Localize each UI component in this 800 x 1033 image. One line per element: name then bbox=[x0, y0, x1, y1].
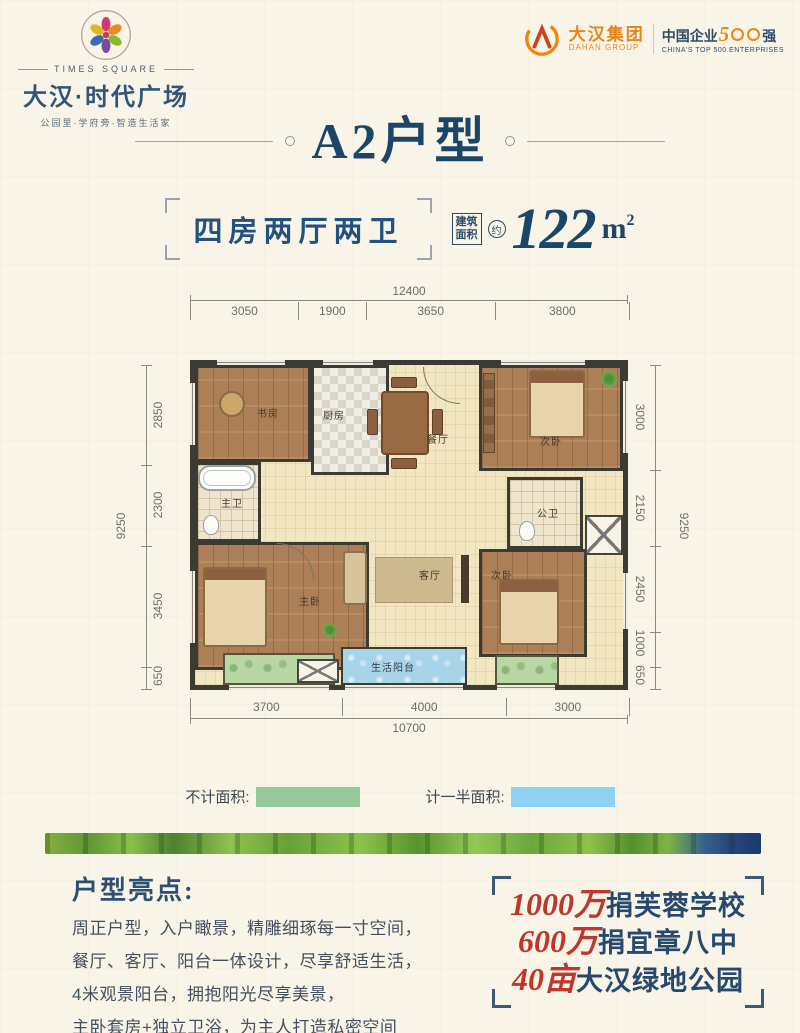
dim-left-line bbox=[146, 365, 147, 690]
dim-value: 3000 bbox=[507, 698, 629, 716]
window bbox=[323, 360, 373, 365]
dim-tick bbox=[141, 465, 152, 466]
bracket-corner bbox=[417, 198, 432, 213]
bed-bedroom-top bbox=[529, 370, 585, 438]
dining-table bbox=[381, 391, 429, 455]
area-group: 建筑 面积 约 122 m2 bbox=[452, 200, 635, 258]
room-label-dining: 餐厅 bbox=[427, 431, 449, 446]
dim-value: 3800 bbox=[496, 302, 629, 320]
room-label-kitchen: 厨房 bbox=[323, 407, 345, 422]
ac-platform bbox=[585, 515, 623, 555]
zero-circle-icon bbox=[731, 28, 744, 41]
room-label-balcony: 生活阳台 bbox=[371, 659, 415, 674]
dim-bottom-total: 10700 bbox=[190, 718, 628, 737]
bracket-corner bbox=[165, 245, 180, 260]
badge-suffix: 强 bbox=[762, 26, 776, 46]
flower-logo-icon bbox=[79, 8, 133, 62]
dim-value: 650 bbox=[151, 654, 165, 698]
window bbox=[345, 685, 463, 690]
dim-value: 1900 bbox=[299, 302, 367, 320]
ac-platform bbox=[297, 659, 339, 683]
dim-value: 3450 bbox=[151, 584, 165, 628]
bracket-corner bbox=[417, 245, 432, 260]
donation-line: 1000万捐芙蓉学校 bbox=[510, 887, 746, 922]
highlights-text: 周正户型，入户瞰景，精雕细琢每一寸空间， 餐厅、客厅、阳台一体设计，尽享舒适生活… bbox=[72, 912, 422, 1033]
dahan-group-icon bbox=[523, 20, 561, 58]
times-square-text: TIMES SQUARE bbox=[54, 64, 158, 74]
dim-value: 4000 bbox=[343, 698, 507, 716]
highlight-line: 餐厅、客厅、阳台一体设计，尽享舒适生活， bbox=[72, 945, 422, 978]
legend-swatch-excluded bbox=[256, 787, 360, 807]
dim-left-total: 9250 bbox=[114, 504, 128, 548]
highlight-line: 主卧套房+独立卫浴，为主人打造私密空间 bbox=[72, 1011, 422, 1033]
dim-value: 3050 bbox=[191, 302, 299, 320]
room-label-master-bath: 主卫 bbox=[221, 495, 243, 510]
brand-name: 大汉·时代广场 bbox=[18, 77, 194, 112]
green-divider-strip bbox=[45, 833, 761, 854]
study-desk bbox=[219, 391, 245, 417]
donation-text: 捐宜章八中 bbox=[598, 928, 738, 958]
dim-value: 10700 bbox=[392, 721, 425, 735]
donation-amount: 40亩 bbox=[512, 961, 576, 997]
dim-tick bbox=[650, 546, 661, 547]
highlight-line: 4米观景阳台，拥抱阳光尽享美景， bbox=[72, 978, 422, 1011]
dining-chair bbox=[391, 377, 417, 388]
dim-tick bbox=[650, 632, 661, 633]
title-dot-icon bbox=[285, 136, 295, 146]
badge-five: 5 bbox=[719, 24, 730, 45]
dim-value: 3000 bbox=[633, 395, 647, 439]
wardrobe bbox=[483, 373, 495, 453]
dim-right-line bbox=[655, 365, 656, 690]
legend-label-half: 计一半面积: bbox=[426, 786, 505, 807]
title-line-right bbox=[527, 141, 665, 142]
dining-chair bbox=[367, 409, 378, 435]
zero-circle-icon bbox=[747, 28, 760, 41]
bed-bedroom-bottom bbox=[499, 579, 559, 645]
dim-bottom-segments: 3700 4000 3000 bbox=[190, 698, 630, 716]
dim-value: 650 bbox=[633, 653, 647, 697]
window bbox=[497, 685, 555, 690]
donation-line: 600万捐宜章八中 bbox=[518, 924, 738, 959]
donation-line: 40亩大汉绿地公园 bbox=[512, 962, 744, 997]
bracket-corner bbox=[745, 876, 764, 895]
dim-value: 2300 bbox=[151, 483, 165, 527]
balcony-green-right bbox=[495, 655, 559, 685]
dim-value: 3650 bbox=[367, 302, 496, 320]
window bbox=[190, 571, 195, 643]
dining-chair bbox=[391, 458, 417, 469]
title-line-left bbox=[135, 141, 273, 142]
window bbox=[623, 573, 628, 629]
spec-row: 四房两厅两卫 建筑 面积 约 122 m2 bbox=[0, 198, 800, 260]
brand-logo-block: TIMES SQUARE 大汉·时代广场 公园里·学府旁·智造生活家 bbox=[18, 8, 194, 129]
room-study bbox=[195, 365, 311, 462]
area-label-line1: 建筑 bbox=[456, 216, 478, 229]
plant-icon bbox=[323, 623, 337, 637]
window bbox=[190, 383, 195, 445]
plant-icon bbox=[601, 371, 617, 387]
bathtub bbox=[198, 465, 256, 491]
area-unit: m bbox=[602, 212, 627, 245]
dim-value: 12400 bbox=[392, 284, 425, 298]
group-name-block: 大汉集团 DAHAN GROUP bbox=[569, 26, 645, 53]
bed-master bbox=[203, 567, 267, 647]
group-name-en: DAHAN GROUP bbox=[569, 43, 645, 52]
dim-value: 2850 bbox=[151, 393, 165, 437]
window bbox=[623, 381, 628, 453]
toilet bbox=[203, 515, 219, 535]
title-row: A2户型 bbox=[0, 116, 800, 166]
floor-plan: 书房 厨房 餐厅 次卧 主卫 公卫 主卧 客厅 次卧 生活阳台 bbox=[190, 360, 628, 690]
area-label-box: 建筑 面积 bbox=[452, 213, 482, 245]
tv-cabinet bbox=[461, 555, 469, 603]
area-legend: 不计面积: 计一半面积: bbox=[0, 786, 800, 807]
area-unit-block: m2 bbox=[602, 212, 635, 246]
dim-top-segments: 3050 1900 3650 3800 bbox=[190, 302, 630, 320]
times-square-row: TIMES SQUARE bbox=[18, 64, 194, 74]
donation-text: 捐芙蓉学校 bbox=[606, 891, 746, 921]
room-label-public-bath: 公卫 bbox=[537, 505, 559, 520]
donation-amount: 1000万 bbox=[510, 886, 606, 922]
badge-top: 中国企业5强 bbox=[662, 24, 784, 46]
layout-spec-text: 四房两厅两卫 bbox=[193, 216, 403, 248]
group-name: 大汉集团 bbox=[569, 26, 645, 44]
legend-label-excluded: 不计面积: bbox=[185, 786, 249, 807]
page-title: A2户型 bbox=[311, 116, 488, 166]
dim-tick bbox=[650, 667, 661, 668]
dim-value: 2450 bbox=[633, 567, 647, 611]
dim-value: 2150 bbox=[633, 486, 647, 530]
area-label-line2: 面积 bbox=[456, 229, 478, 242]
sofa bbox=[343, 551, 367, 605]
donation-amount: 600万 bbox=[518, 923, 598, 959]
area-value: 122 bbox=[512, 200, 596, 258]
title-dot-icon bbox=[505, 136, 515, 146]
donation-text: 大汉绿地公园 bbox=[576, 966, 744, 996]
divider-line bbox=[18, 69, 48, 70]
dim-top-total: 12400 bbox=[190, 284, 628, 301]
poster-page: TIMES SQUARE 大汉·时代广场 公园里·学府旁·智造生活家 大汉集团 … bbox=[0, 0, 800, 1033]
window bbox=[501, 360, 585, 365]
window bbox=[229, 685, 329, 690]
room-label-bedroom-top: 次卧 bbox=[540, 433, 562, 448]
dim-tick bbox=[141, 365, 152, 366]
dim-tick bbox=[650, 689, 661, 690]
dim-value: 3700 bbox=[191, 698, 343, 716]
badge-prefix: 中国企业 bbox=[662, 26, 718, 46]
dim-tick bbox=[650, 470, 661, 471]
bracket-corner bbox=[165, 198, 180, 213]
group-logo-block: 大汉集团 DAHAN GROUP 中国企业5强 CHINA'S TOP 500 … bbox=[523, 20, 784, 58]
layout-spec: 四房两厅两卫 bbox=[165, 198, 431, 260]
approx-circle: 约 bbox=[488, 220, 506, 238]
donations-block: 1000万捐芙蓉学校 600万捐宜章八中 40亩大汉绿地公园 bbox=[492, 876, 764, 1008]
dim-right-total: 9250 bbox=[677, 504, 691, 548]
bracket-corner bbox=[492, 876, 511, 895]
area-exponent: 2 bbox=[627, 212, 635, 229]
badge-subtitle: CHINA'S TOP 500 ENTERPRISES bbox=[662, 47, 784, 54]
legend-swatch-half bbox=[511, 787, 615, 807]
highlights-heading: 户型亮点: bbox=[72, 870, 195, 907]
room-label-bedroom-bottom: 次卧 bbox=[491, 567, 513, 582]
bracket-corner bbox=[492, 989, 511, 1008]
toilet bbox=[519, 521, 535, 541]
dim-tick bbox=[141, 546, 152, 547]
room-label-living: 客厅 bbox=[419, 567, 441, 582]
highlight-line: 周正户型，入户瞰景，精雕细琢每一寸空间， bbox=[72, 912, 422, 945]
rug bbox=[375, 557, 453, 603]
group-badge: 中国企业5强 CHINA'S TOP 500 ENTERPRISES bbox=[662, 24, 784, 54]
divider-line bbox=[164, 69, 194, 70]
vertical-divider bbox=[653, 24, 654, 54]
legend-item-excluded: 不计面积: bbox=[185, 786, 359, 807]
room-label-master-bedroom: 主卧 bbox=[299, 593, 321, 608]
legend-item-half: 计一半面积: bbox=[426, 786, 615, 807]
window bbox=[217, 360, 285, 365]
dim-tick bbox=[650, 365, 661, 366]
bracket-corner bbox=[745, 989, 764, 1008]
room-label-study: 书房 bbox=[257, 405, 279, 420]
